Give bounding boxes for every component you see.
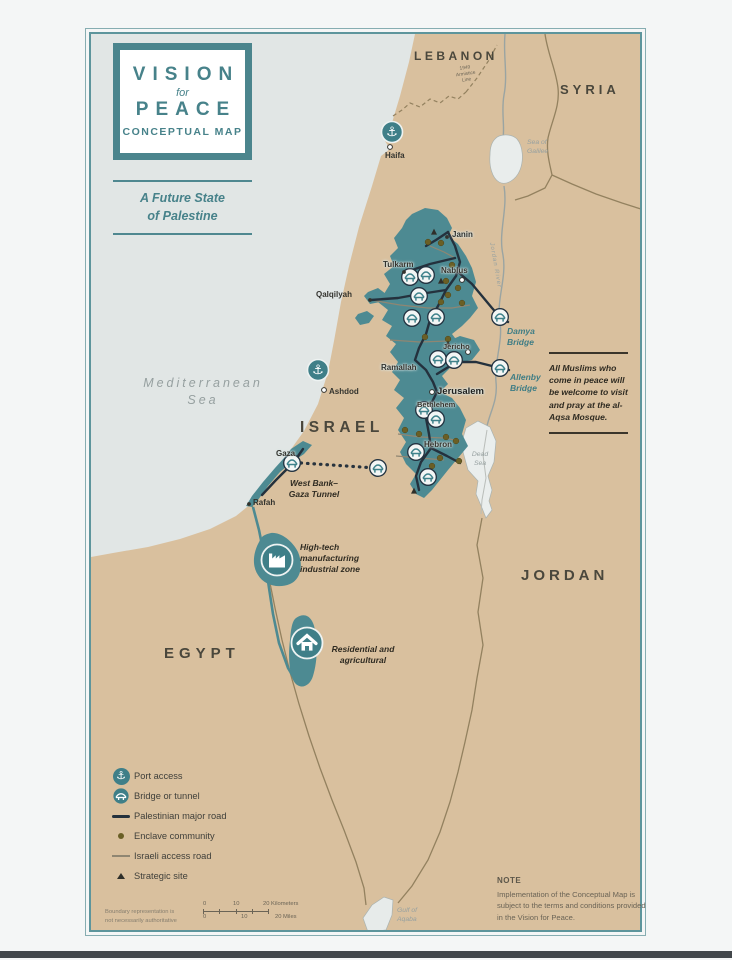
bottom-bar bbox=[0, 951, 732, 958]
bridge-tunnel-icon bbox=[428, 411, 445, 428]
label-allenby-bridge: Allenby Bridge bbox=[510, 372, 541, 394]
label-residential-zone: Residential and agricultural bbox=[327, 644, 399, 666]
legend-row-port: ⚓ Port access bbox=[108, 766, 308, 786]
bridge-tunnel-icon bbox=[370, 460, 387, 477]
label-hebron: Hebron bbox=[424, 440, 452, 449]
scale-km-20: 20 Kilometers bbox=[263, 901, 298, 907]
al-aqsa-note: All Muslims who come in peace will be we… bbox=[549, 352, 628, 434]
israeli-road-swatch bbox=[112, 855, 130, 857]
label-sea-of-galilee: Sea of Galilee bbox=[527, 138, 548, 156]
scale-mi-0: 0 bbox=[203, 914, 206, 920]
note-block: NOTE Implementation of the Conceptual Ma… bbox=[497, 876, 649, 923]
label-haifa: Haifa bbox=[385, 151, 405, 160]
bridge-icon bbox=[113, 788, 129, 804]
legend-row-enclave: Enclave community bbox=[108, 826, 308, 846]
note-body: Implementation of the Conceptual Map is … bbox=[497, 889, 649, 923]
bridge-tunnel-icon bbox=[428, 309, 445, 326]
label-qalqilyah: Qalqilyah bbox=[316, 290, 352, 299]
scale-mi-10: 10 bbox=[241, 914, 247, 920]
palestinian-road-swatch bbox=[112, 815, 130, 818]
label-ashdod: Ashdod bbox=[329, 387, 359, 396]
city-dot bbox=[368, 298, 372, 302]
bridge-tunnel-icon bbox=[404, 310, 421, 327]
bridge-tunnel-icon bbox=[430, 351, 447, 368]
house-icon bbox=[292, 628, 323, 659]
scale-line bbox=[203, 911, 269, 912]
legend-row-bridge: Bridge or tunnel bbox=[108, 786, 308, 806]
city-dot bbox=[322, 388, 327, 393]
title-line-peace: PEACE bbox=[120, 100, 245, 121]
label-nablus: Nablus bbox=[441, 266, 468, 275]
note-heading: NOTE bbox=[497, 876, 649, 885]
port-anchor-icon bbox=[382, 122, 403, 143]
label-jerusalem: Jerusalem bbox=[437, 386, 484, 397]
city-dot bbox=[430, 390, 435, 395]
legend-label-israeli-road: Israeli access road bbox=[134, 851, 212, 861]
label-israel: ISRAEL bbox=[300, 419, 384, 437]
label-bethlehem: Bethlehem bbox=[417, 400, 455, 409]
scale-mi-20: 20 Miles bbox=[275, 914, 297, 920]
boundary-disclaimer: Boundary representation is not necessari… bbox=[105, 908, 177, 925]
scale-km-10: 10 bbox=[233, 901, 239, 907]
legend-label-port: Port access bbox=[134, 771, 183, 781]
scale-bar: 0 10 20 Kilometers 0 10 20 Miles bbox=[203, 901, 303, 922]
label-jordan: JORDAN bbox=[521, 567, 608, 584]
legend-label-enclave: Enclave community bbox=[134, 831, 215, 841]
title-line-for: for bbox=[120, 87, 245, 99]
bridge-tunnel-icon bbox=[492, 309, 509, 326]
bridge-tunnel-icon bbox=[446, 352, 463, 369]
label-jericho: Jericho bbox=[443, 342, 470, 351]
legend-label-palestinian-road: Palestinian major road bbox=[134, 811, 227, 821]
city-dot bbox=[247, 502, 251, 506]
legend-label-bridge: Bridge or tunnel bbox=[134, 791, 200, 801]
legend: ⚓ Port access Bridge or tunnel Palestini… bbox=[108, 766, 308, 886]
label-mediterranean-sea: Mediterranean Sea bbox=[118, 375, 288, 409]
subtitle-future-state: A Future State of Palestine bbox=[113, 180, 252, 235]
label-gaza: Gaza bbox=[276, 449, 295, 458]
bridge-tunnel-icon bbox=[411, 288, 428, 305]
label-west-bank-gaza-tunnel: West Bank– Gaza Tunnel bbox=[270, 478, 358, 500]
label-egypt: EGYPT bbox=[164, 645, 240, 662]
city-dot bbox=[388, 145, 393, 150]
bridge-tunnel-icon bbox=[420, 469, 437, 486]
city-dot bbox=[460, 278, 465, 283]
scale-km-0: 0 bbox=[203, 901, 206, 907]
label-high-tech-zone: High-tech manufacturing industrial zone bbox=[300, 542, 360, 575]
factory-icon bbox=[262, 545, 293, 576]
screenshot-root: { "title_block": { "line1": "VISION", "l… bbox=[0, 0, 732, 960]
label-syria: SYRIA bbox=[560, 82, 620, 97]
label-damya-bridge: Damya Bridge bbox=[507, 326, 535, 348]
bridge-tunnel-icon bbox=[492, 360, 509, 377]
label-armistice-line: 1949 Armistice Line bbox=[455, 65, 477, 85]
legend-row-israeli-road: Israeli access road bbox=[108, 846, 308, 866]
legend-row-strategic: Strategic site bbox=[108, 866, 308, 886]
label-lebanon: LEBANON bbox=[414, 49, 498, 63]
label-tulkarm: Tulkarm bbox=[383, 260, 414, 269]
label-dead-sea: Dead Sea bbox=[466, 450, 494, 468]
port-anchor-icon bbox=[308, 360, 329, 381]
label-ramallah: Ramallah bbox=[381, 363, 417, 372]
bridge-tunnel-icon bbox=[418, 267, 435, 284]
strategic-site-swatch bbox=[117, 873, 125, 879]
enclave-dot-swatch bbox=[118, 833, 124, 839]
label-janin: Janin bbox=[452, 230, 473, 239]
title-line-conceptual-map: CONCEPTUAL MAP bbox=[120, 126, 245, 138]
legend-row-palestinian-road: Palestinian major road bbox=[108, 806, 308, 826]
city-dot bbox=[445, 235, 449, 239]
anchor-icon: ⚓ bbox=[113, 768, 130, 785]
legend-label-strategic: Strategic site bbox=[134, 871, 188, 881]
city-dot bbox=[402, 270, 406, 274]
title-box: VISION for PEACE CONCEPTUAL MAP bbox=[113, 43, 252, 160]
bridge-tunnel-icon bbox=[408, 444, 425, 461]
title-line-vision: VISION bbox=[120, 65, 245, 86]
label-gulf-of-aqaba: Gulf of Aqaba bbox=[397, 906, 417, 924]
